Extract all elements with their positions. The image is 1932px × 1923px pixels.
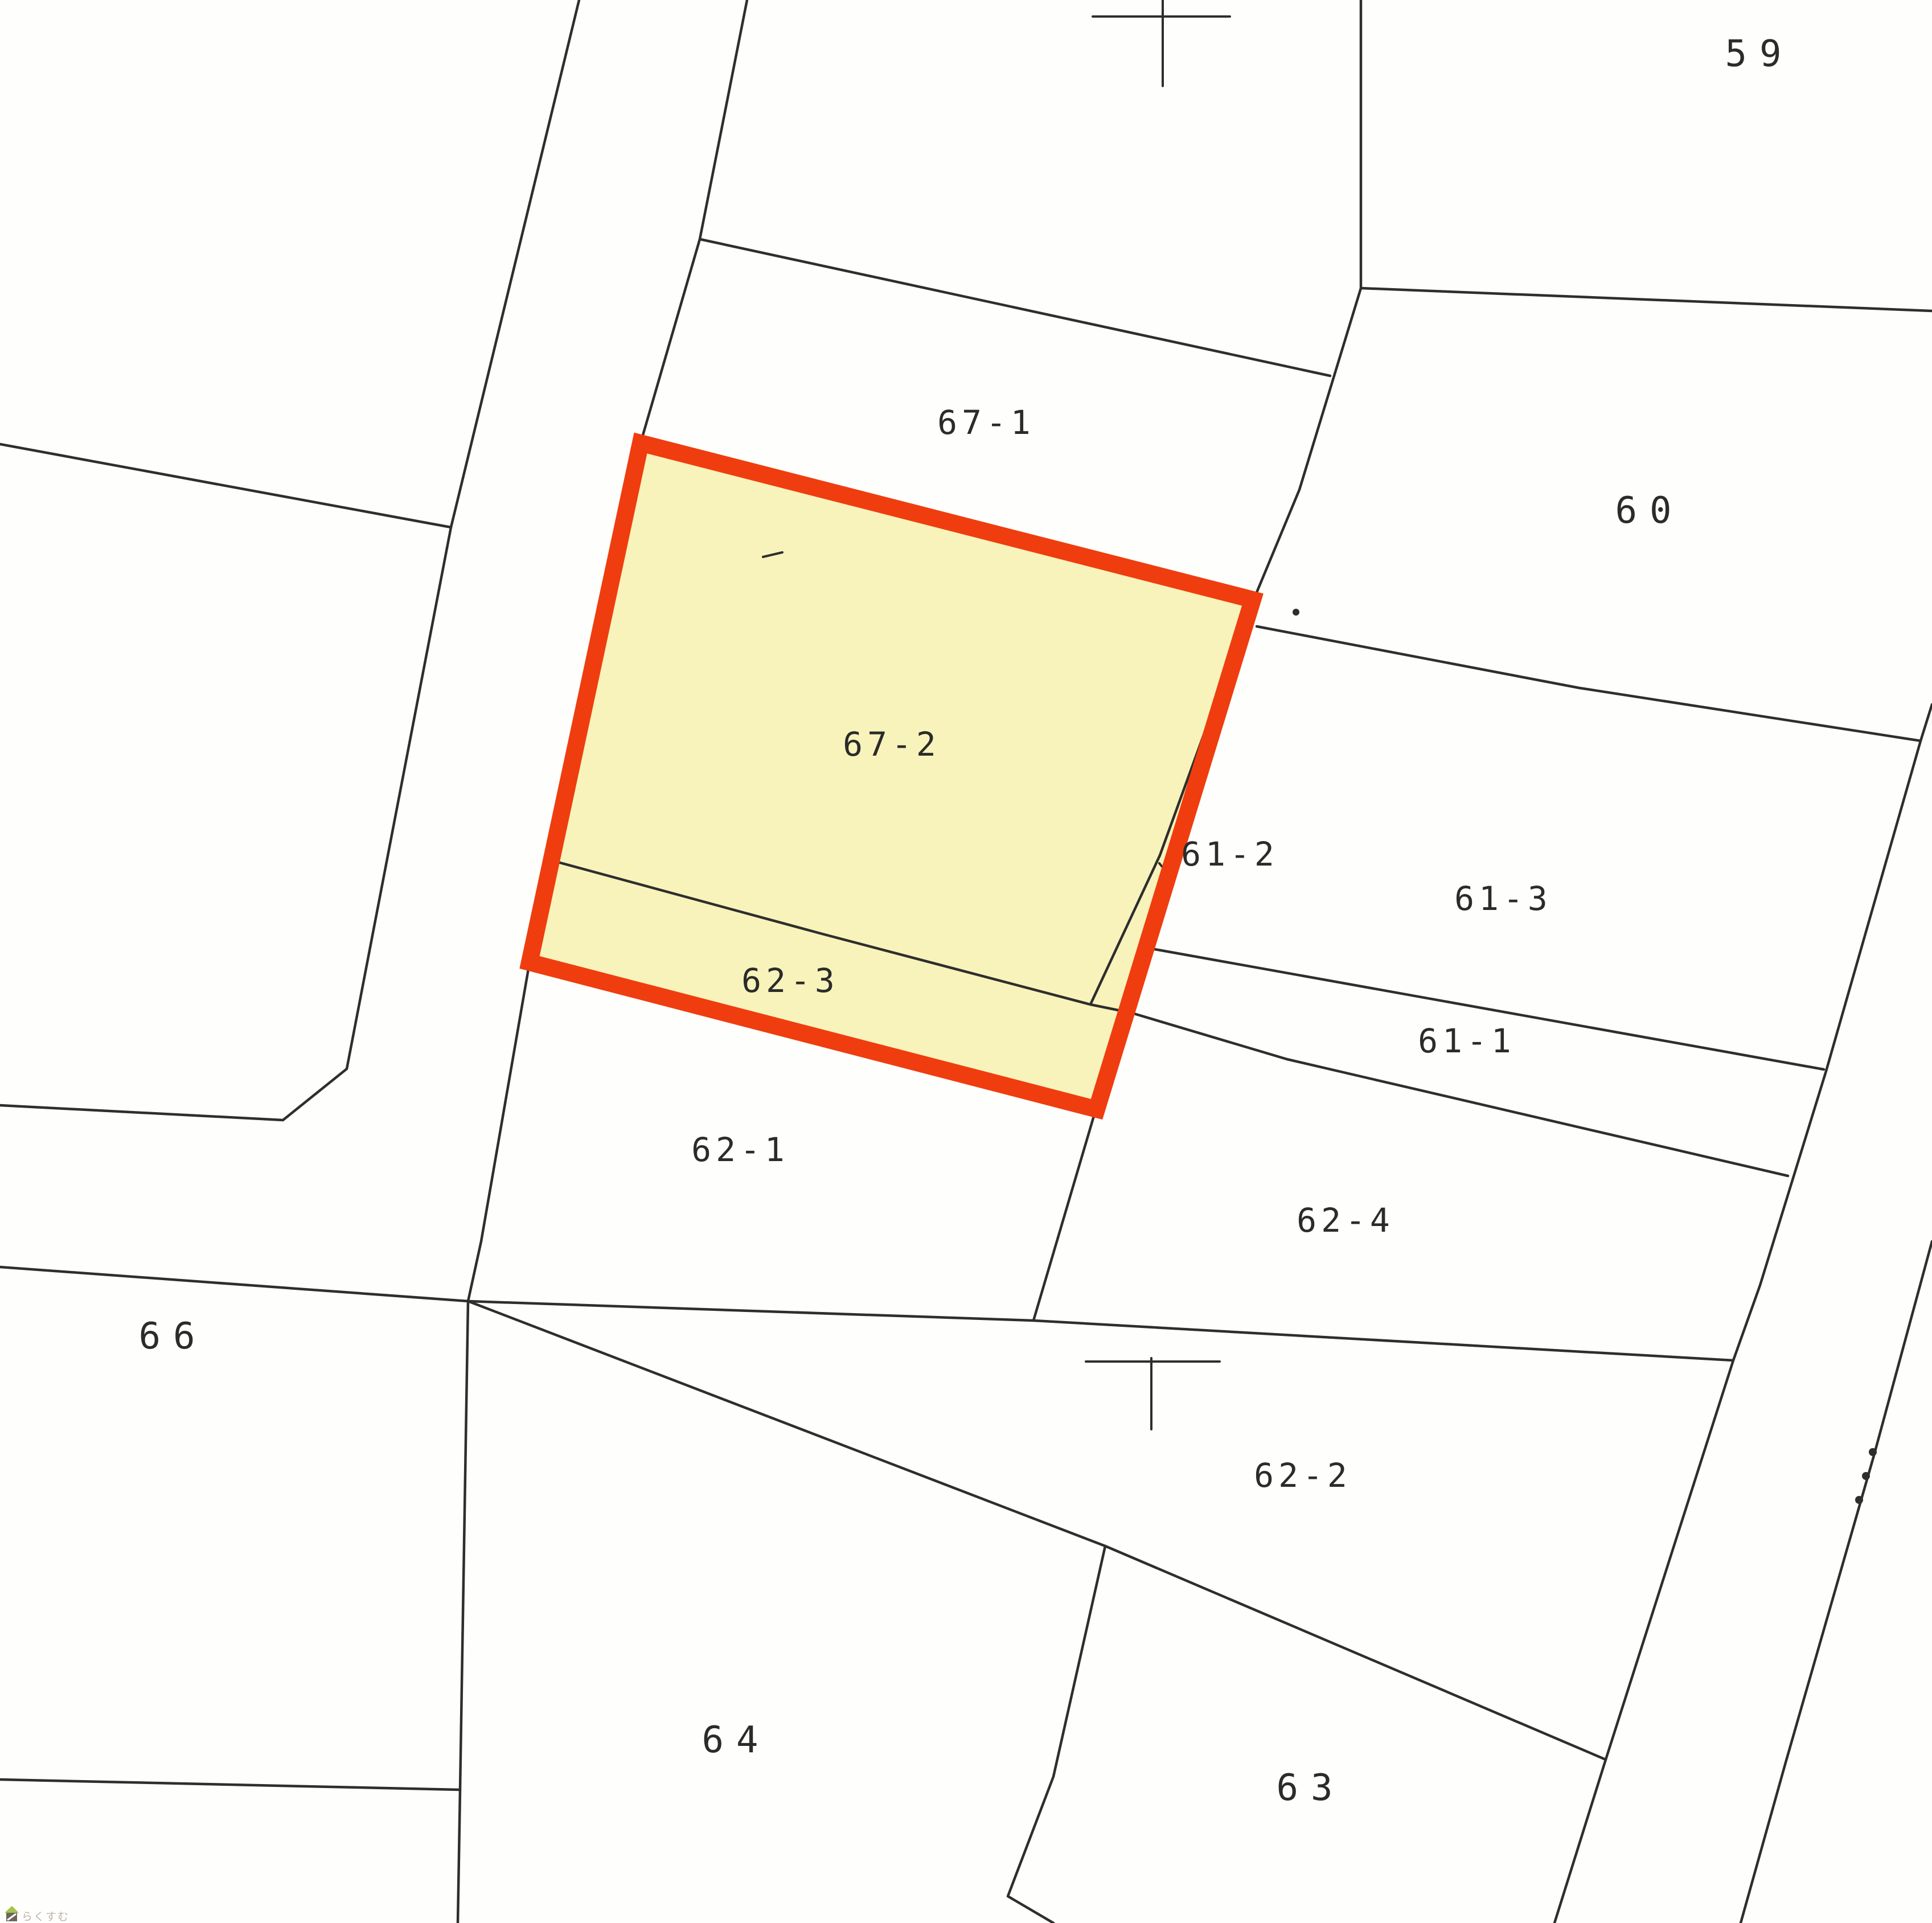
parcel-map-canvas: 59 60 67-1 67-2 61-2 61-3 61-1 62-3 62-1…	[0, 0, 1932, 1923]
boundary-66-north	[0, 1267, 468, 1301]
boundary-62-1-62-2	[468, 1301, 1733, 1360]
parcel-label-62-2: 62-2	[1254, 1456, 1352, 1495]
parcel-label-61-1: 61-1	[1418, 1022, 1516, 1060]
parcel-label-64: 64	[702, 1719, 770, 1761]
parcel-label-62-4: 62-4	[1297, 1201, 1394, 1240]
parcel-label-62-1: 62-1	[691, 1130, 789, 1169]
boundary-northeast-road-east	[1741, 1241, 1932, 1923]
watermark-text: らくすむ	[22, 1910, 69, 1923]
parcel-label-66: 66	[138, 1315, 207, 1358]
boundary-59-60	[1361, 288, 1932, 311]
boundary-northeast-road-west	[1554, 704, 1932, 1923]
watermark-logo: らくすむ	[5, 1906, 69, 1923]
road-dot-1	[1869, 1448, 1877, 1456]
boundary-62-2-south	[468, 1301, 1606, 1760]
parcel-label-61-2: 61-2	[1181, 835, 1279, 874]
survey-point-dot	[1293, 609, 1299, 616]
boundary-left-parcel-top	[0, 444, 451, 527]
parcel-label-63: 63	[1276, 1767, 1345, 1809]
boundary-66-64	[458, 1301, 468, 1923]
parcel-label-67-2: 67-2	[843, 725, 941, 764]
boundary-62-1-62-4	[1033, 1106, 1097, 1321]
road-dot-2	[1862, 1472, 1870, 1480]
parcel-label-59: 59	[1725, 33, 1794, 75]
highlight-fill-layer	[530, 443, 1253, 1109]
survey-tee-icon	[1086, 1358, 1220, 1429]
road-dot-3	[1855, 1496, 1863, 1504]
boundary-66-south	[0, 1780, 460, 1790]
highlighted-parcel-fill	[530, 443, 1253, 1109]
watermark-roof-icon	[5, 1906, 19, 1913]
parcel-label-62-3: 62-3	[741, 961, 839, 1000]
parcel-label-67-1: 67-1	[937, 403, 1035, 442]
cadastral-map: 59 60 67-1 67-2 61-2 61-3 61-1 62-3 62-1…	[0, 0, 1932, 1923]
survey-cross-icon	[1093, 0, 1230, 86]
parcel-label-61-3: 61-3	[1454, 879, 1552, 918]
boundary-67-1-north	[700, 239, 1330, 376]
boundary-60-west	[1254, 288, 1361, 598]
boundary-64-63	[1008, 1546, 1105, 1923]
parcel-label-60: 60	[1615, 490, 1684, 532]
boundary-road-west	[0, 0, 579, 1120]
boundary-60-61-3	[1257, 626, 1921, 741]
